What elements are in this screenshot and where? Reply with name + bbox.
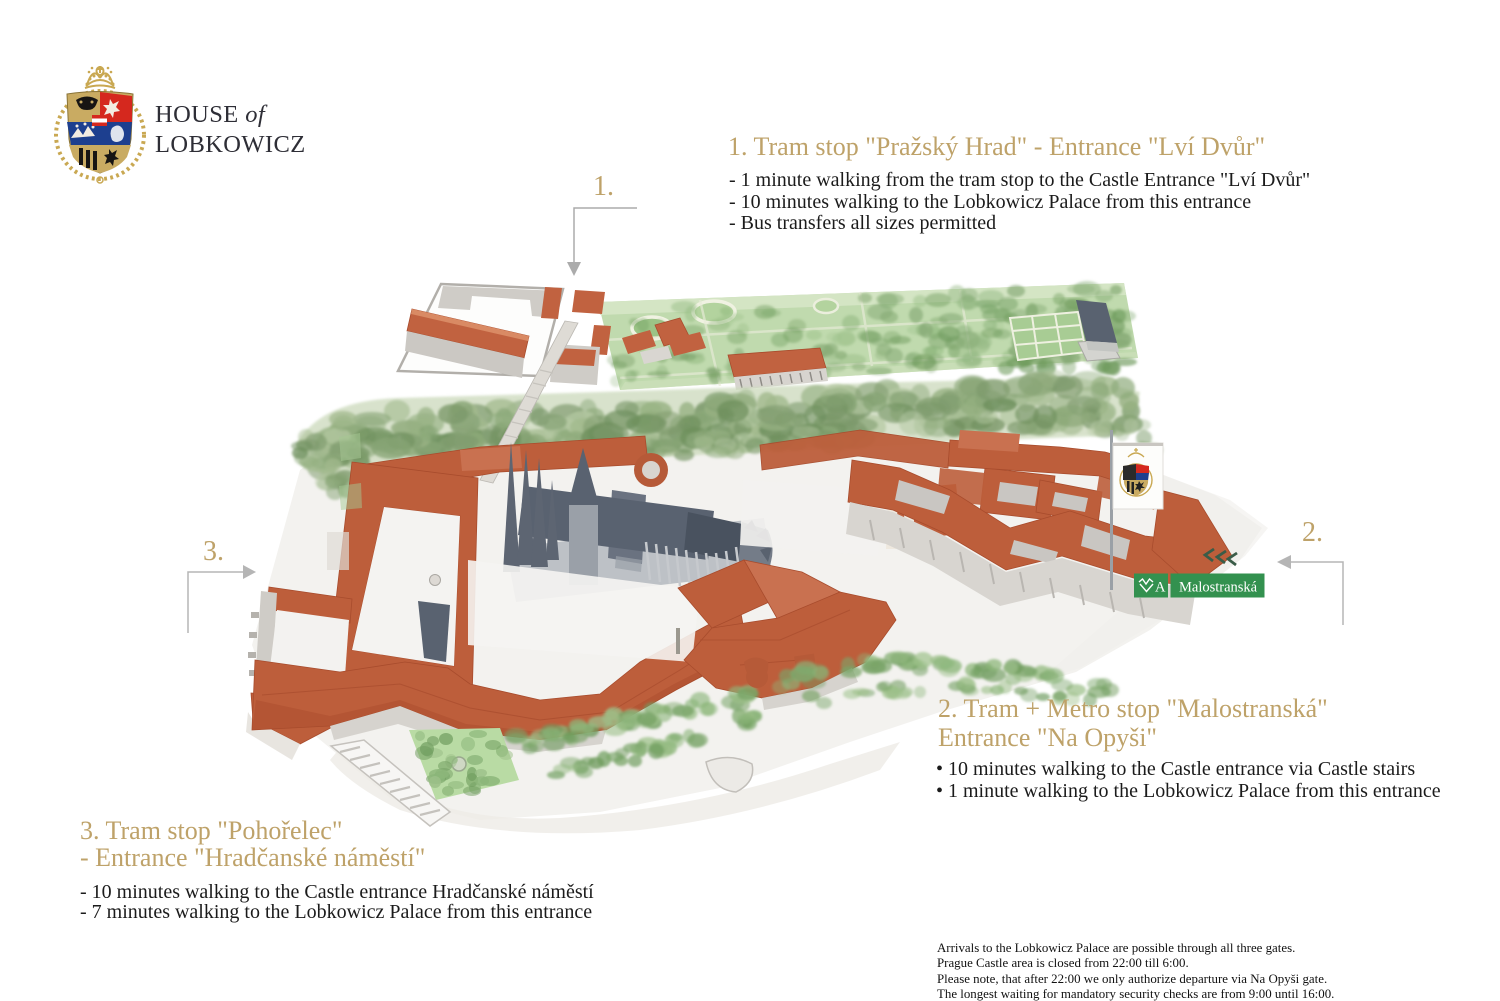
svg-text:A: A: [1155, 580, 1166, 596]
svg-text:Malostranská: Malostranská: [1179, 580, 1258, 596]
